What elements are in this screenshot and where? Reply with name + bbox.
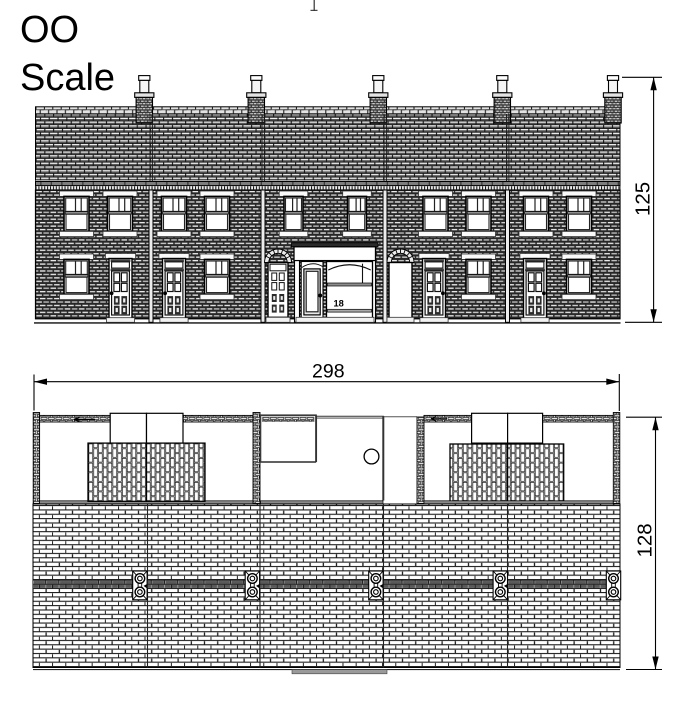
svg-text:298: 298 <box>312 361 345 383</box>
svg-text:128: 128 <box>634 523 657 557</box>
svg-text:Scale: Scale <box>20 57 115 99</box>
svg-text:18: 18 <box>334 298 344 308</box>
svg-text:OO: OO <box>20 9 79 51</box>
svg-text:125: 125 <box>632 182 655 216</box>
